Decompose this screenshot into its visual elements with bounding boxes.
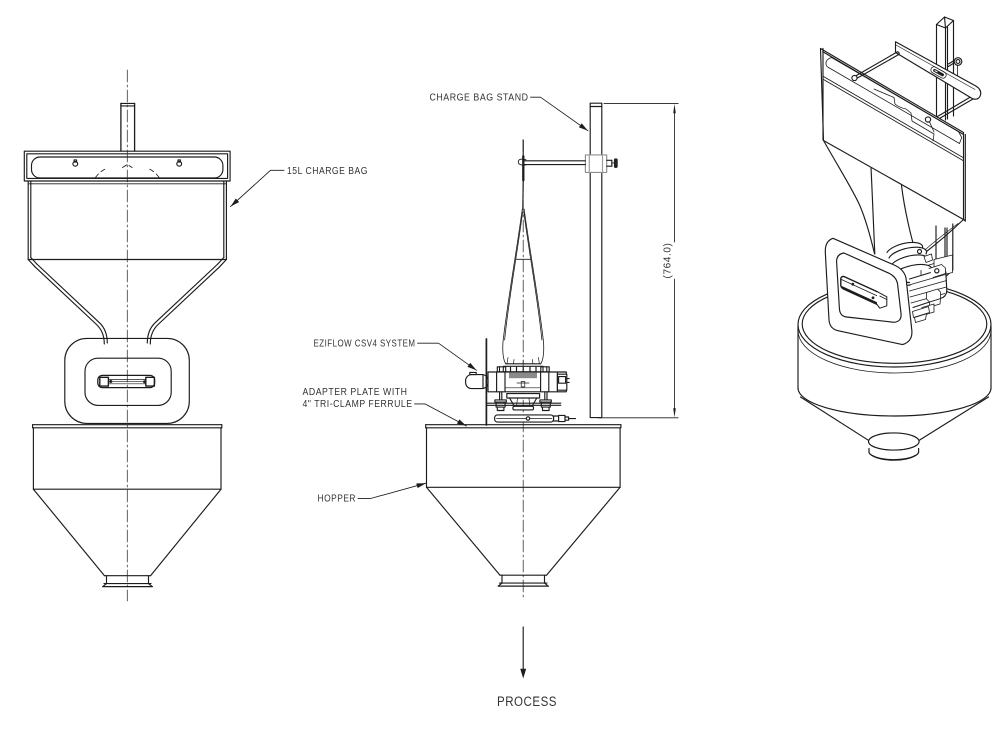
svg-text:HOPPER: HOPPER [318, 494, 357, 505]
svg-text:4" TRI-CLAMP FERRULE: 4" TRI-CLAMP FERRULE [303, 399, 413, 410]
svg-text:15L CHARGE BAG: 15L CHARGE BAG [287, 166, 368, 177]
svg-text:EZIFLOW CSV4 SYSTEM: EZIFLOW CSV4 SYSTEM [314, 339, 416, 350]
svg-text:CHARGE BAG STAND: CHARGE BAG STAND [430, 93, 529, 104]
svg-text:ADAPTER PLATE WITH: ADAPTER PLATE WITH [303, 387, 408, 398]
svg-text:(764.0): (764.0) [663, 243, 674, 279]
svg-text:PROCESS: PROCESS [497, 694, 557, 709]
